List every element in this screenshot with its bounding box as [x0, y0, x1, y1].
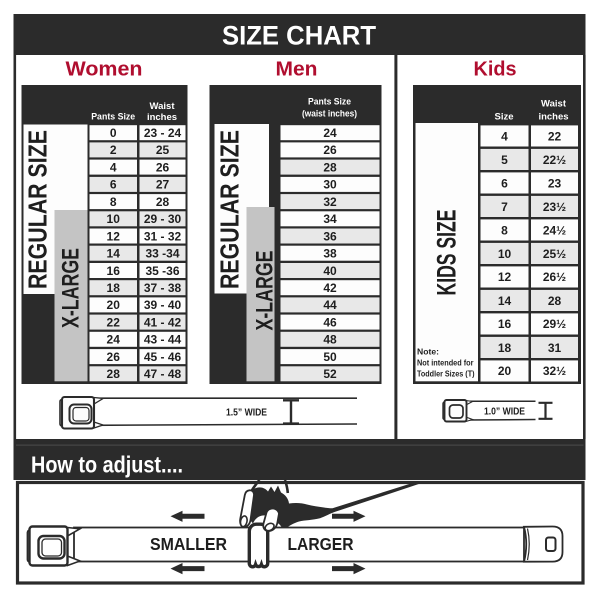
svg-text:33 -34: 33 -34: [145, 247, 179, 261]
svg-text:36: 36: [323, 229, 337, 243]
svg-text:43 - 44: 43 - 44: [144, 333, 182, 347]
svg-text:47 - 48: 47 - 48: [144, 367, 182, 381]
svg-text:10: 10: [107, 212, 121, 226]
svg-text:X-LARGE: X-LARGE: [251, 251, 278, 331]
svg-text:How to adjust....: How to adjust....: [31, 452, 183, 478]
svg-text:10: 10: [498, 247, 512, 261]
svg-text:37 - 38: 37 - 38: [144, 281, 182, 295]
svg-text:6: 6: [110, 178, 117, 192]
svg-text:52: 52: [323, 367, 337, 381]
svg-text:SIZE CHART: SIZE CHART: [222, 21, 376, 51]
svg-text:44: 44: [323, 298, 337, 312]
svg-text:34: 34: [323, 212, 337, 226]
svg-text:8: 8: [110, 195, 117, 209]
svg-text:35 -36: 35 -36: [145, 264, 179, 278]
svg-text:29 - 30: 29 - 30: [144, 212, 182, 226]
svg-text:29½: 29½: [543, 317, 566, 331]
svg-text:Toddler Sizes (T): Toddler Sizes (T): [417, 369, 475, 379]
svg-text:30: 30: [323, 178, 337, 192]
svg-text:31 - 32: 31 - 32: [144, 229, 182, 243]
svg-text:50: 50: [323, 350, 337, 364]
svg-text:14: 14: [498, 294, 512, 308]
svg-text:5: 5: [501, 153, 508, 167]
svg-text:Size: Size: [494, 112, 513, 123]
svg-text:28: 28: [107, 367, 121, 381]
svg-text:Waist: Waist: [150, 101, 176, 112]
svg-text:2: 2: [110, 143, 117, 157]
svg-text:Note:: Note:: [417, 347, 439, 357]
svg-text:Pants Size: Pants Size: [91, 112, 135, 123]
svg-text:25½: 25½: [543, 247, 566, 261]
svg-text:Kids: Kids: [474, 59, 517, 81]
svg-text:25: 25: [156, 143, 170, 157]
svg-text:46: 46: [323, 315, 337, 329]
svg-text:1.0” WIDE: 1.0” WIDE: [484, 406, 525, 418]
svg-text:REGULAR SIZE: REGULAR SIZE: [25, 130, 53, 289]
svg-text:40: 40: [323, 264, 337, 278]
svg-text:20: 20: [107, 298, 121, 312]
svg-text:Women: Women: [66, 59, 143, 81]
svg-text:inches: inches: [538, 112, 568, 123]
svg-text:28: 28: [548, 294, 562, 308]
svg-text:26: 26: [107, 350, 121, 364]
svg-text:inches: inches: [147, 112, 177, 123]
svg-text:42: 42: [323, 281, 337, 295]
svg-text:20: 20: [498, 364, 512, 378]
svg-text:24½: 24½: [543, 223, 566, 237]
svg-text:32: 32: [323, 195, 337, 209]
svg-text:14: 14: [107, 247, 121, 261]
svg-text:32½: 32½: [543, 364, 566, 378]
svg-text:26: 26: [156, 160, 170, 174]
svg-text:23½: 23½: [543, 200, 566, 214]
svg-text:31: 31: [548, 341, 562, 355]
svg-text:4: 4: [110, 160, 117, 174]
svg-text:18: 18: [107, 281, 121, 295]
svg-text:22½: 22½: [543, 153, 566, 167]
svg-text:Men: Men: [276, 59, 318, 81]
svg-text:48: 48: [323, 333, 337, 347]
svg-text:38: 38: [323, 247, 337, 261]
svg-text:X-LARGE: X-LARGE: [58, 248, 85, 328]
svg-text:LARGER: LARGER: [288, 534, 354, 554]
svg-text:26: 26: [323, 143, 337, 157]
svg-text:REGULAR SIZE: REGULAR SIZE: [217, 130, 245, 289]
svg-text:Not intended for: Not intended for: [417, 358, 474, 368]
svg-text:SMALLER: SMALLER: [150, 534, 227, 554]
svg-text:16: 16: [107, 264, 121, 278]
svg-text:28: 28: [156, 195, 170, 209]
svg-text:28: 28: [323, 160, 337, 174]
svg-text:23: 23: [548, 176, 562, 190]
svg-text:0: 0: [110, 126, 117, 140]
svg-text:27: 27: [156, 178, 170, 192]
svg-text:Pants Size: Pants Size: [308, 97, 351, 108]
svg-text:18: 18: [498, 341, 512, 355]
svg-text:4: 4: [501, 129, 508, 143]
svg-text:22: 22: [548, 129, 562, 143]
svg-text:12: 12: [107, 229, 121, 243]
svg-text:24: 24: [323, 126, 337, 140]
svg-text:23 - 24: 23 - 24: [144, 126, 182, 140]
svg-text:8: 8: [501, 223, 508, 237]
svg-text:1.5” WIDE: 1.5” WIDE: [226, 407, 267, 419]
svg-text:26½: 26½: [543, 270, 566, 284]
svg-text:Waist: Waist: [541, 99, 567, 110]
svg-text:41 - 42: 41 - 42: [144, 315, 182, 329]
svg-text:(waist inches): (waist inches): [302, 109, 357, 120]
svg-text:KIDS SIZE: KIDS SIZE: [432, 210, 462, 296]
svg-text:7: 7: [501, 200, 508, 214]
svg-text:45 - 46: 45 - 46: [144, 350, 182, 364]
svg-text:39 - 40: 39 - 40: [144, 298, 182, 312]
svg-text:6: 6: [501, 176, 508, 190]
svg-text:12: 12: [498, 270, 512, 284]
svg-text:24: 24: [107, 333, 121, 347]
svg-text:16: 16: [498, 317, 512, 331]
svg-text:22: 22: [107, 315, 121, 329]
